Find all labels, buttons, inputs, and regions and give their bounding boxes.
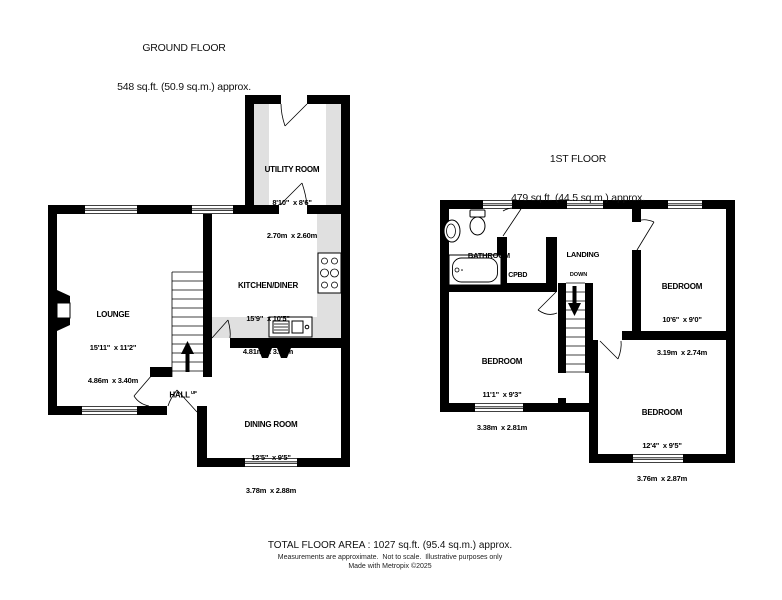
door-swing <box>538 292 557 314</box>
hall-up-label: UP <box>191 390 197 395</box>
window <box>192 205 233 214</box>
hall-label: HALLUP <box>165 381 196 400</box>
utility-room-label: UTILITY ROOM 8'10" x 8'6" 2.70m x 2.60m <box>265 142 320 252</box>
door-swing <box>600 341 621 359</box>
fireplace-icon <box>57 290 70 331</box>
ground-floor-title-text: GROUND FLOOR <box>117 42 251 55</box>
ground-floor-area-text: 548 sq.ft. (50.9 sq.m.) approx. <box>117 81 251 94</box>
footer-disclaimer: Measurements are approximate. Not to sca… <box>278 554 503 561</box>
lounge-label: LOUNGE 15'11" x 11'2" 4.86m x 3.40m <box>88 287 138 397</box>
ground-floor-title: GROUND FLOOR 548 sq.ft. (50.9 sq.m.) app… <box>117 16 251 107</box>
door-swing <box>281 104 307 126</box>
first-floor-title: 1ST FLOOR 479 sq.ft. (44.5 sq.m.) approx… <box>511 127 645 218</box>
bedroom-1-label: BEDROOM 10'6" x 9'0" 3.19m x 2.74m <box>657 259 707 369</box>
footer-credit: Made with Metropix ©2025 <box>348 563 431 570</box>
toilet-icon <box>470 210 485 235</box>
floorplan-page: GROUND FLOOR 548 sq.ft. (50.9 sq.m.) app… <box>0 0 782 600</box>
dining-room-label: DINING ROOM 12'5" x 9'5" 3.78m x 2.88m <box>245 397 298 507</box>
total-floor-area: TOTAL FLOOR AREA : 1027 sq.ft. (95.4 sq.… <box>268 540 512 551</box>
bedroom-3-label: BEDROOM 12'4" x 9'5" 3.76m x 2.87m <box>637 385 687 495</box>
sink-icon <box>444 220 460 242</box>
stove-icon <box>318 253 341 293</box>
window <box>668 200 702 209</box>
bedroom-2-label: BEDROOM 11'1" x 9'3" 3.38m x 2.81m <box>477 334 527 444</box>
first-floor-area-text: 479 sq.ft. (44.5 sq.m.) approx. <box>511 192 645 205</box>
first-floor-stairs <box>566 283 585 372</box>
window <box>483 200 512 209</box>
ground-stairs <box>172 272 203 377</box>
stairs-up-arrow-icon <box>181 341 194 372</box>
door-swing <box>637 220 654 250</box>
kitchen-diner-label: KITCHEN/DINER 15'9" x 10'5" 4.81m x 3.17… <box>238 258 298 368</box>
landing-down-label: DOWN <box>567 266 587 278</box>
window <box>85 205 137 214</box>
cupboard-label: CPBD <box>505 265 528 279</box>
window <box>82 406 137 415</box>
bathroom-label: BATHROOM <box>464 242 510 260</box>
landing-label: LANDING <box>563 241 600 259</box>
first-floor-title-text: 1ST FLOOR <box>511 153 645 166</box>
